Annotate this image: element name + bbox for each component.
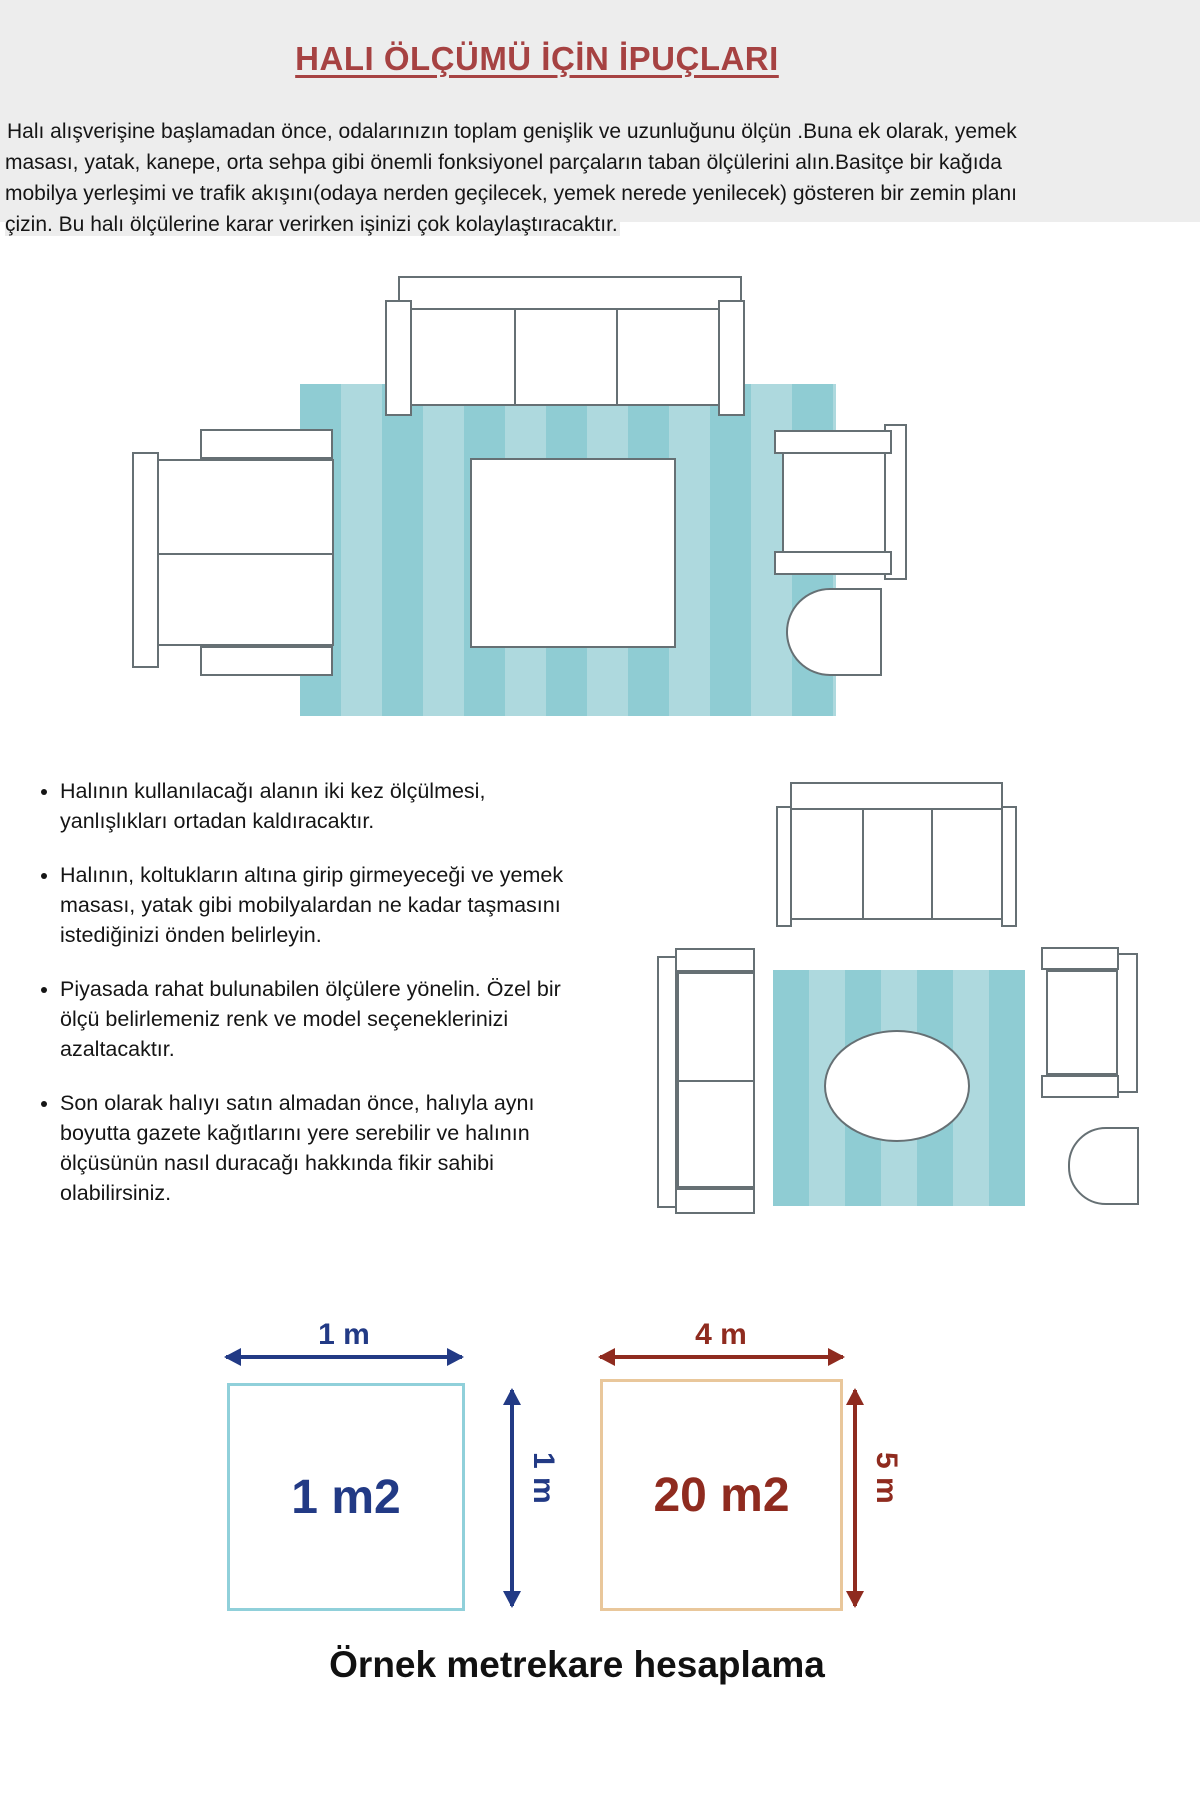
sofa-back [398,276,742,310]
sofa-armrest-right [1001,806,1017,927]
tips-list: Halının kullanılacağı alanın iki kez ölç… [8,776,660,1232]
right-square-width-arrow [600,1355,843,1359]
tip-text: Halının, koltukların altına girip girmey… [60,863,563,947]
rounded-chair [786,588,882,676]
sofa-cushion-divider [514,310,516,404]
right-square-area-label: 20 m2 [653,1468,789,1523]
armchair-seat [1046,970,1118,1075]
sofa-cushion-divider [931,810,933,918]
loveseat-cushion-divider [159,553,332,555]
armchair-armrest-bottom [1041,1075,1119,1098]
right-square-height-arrow [853,1390,857,1606]
rounded-chair [1068,1127,1139,1205]
loveseat-seat [677,972,755,1188]
twenty-square-meter-box: 20 m2 [600,1379,843,1611]
loveseat-armrest-top [675,948,755,972]
armchair-seat [782,452,886,553]
armchair-armrest-top [774,430,892,454]
sofa-back [790,782,1003,810]
one-square-meter-box: 1 m2 [227,1383,465,1611]
page-title: HALI ÖLÇÜMÜ İÇİN İPUÇLARI [0,40,1074,78]
left-square-width-label: 1 m [284,1318,404,1352]
armchair-back [1116,953,1138,1093]
coffee-table [470,458,676,648]
sofa-cushion-divider [862,810,864,918]
tip-item: Halının, koltukların altına girip girmey… [60,860,660,950]
sofa-armrest-right [718,300,745,416]
tip-item: Son olarak halıyı satın almadan önce, ha… [60,1088,660,1208]
loveseat-armrest-bottom [200,646,333,676]
tip-item: Piyasada rahat bulunabilen ölçülere yöne… [60,974,660,1064]
carpet-measuring-tips-page: HALI ÖLÇÜMÜ İÇİN İPUÇLARI Halı alışveriş… [0,0,1200,1800]
sofa-cushion-divider [616,310,618,404]
tip-text: Son olarak halıyı satın almadan önce, ha… [60,1091,534,1205]
loveseat-back [132,452,159,668]
tip-text: Halının kullanılacağı alanın iki kez ölç… [60,779,485,833]
left-square-height-arrow [510,1390,514,1606]
tip-item: Halının kullanılacağı alanın iki kez ölç… [60,776,660,836]
left-square-width-arrow [226,1355,462,1359]
loveseat-cushion-divider [679,1080,753,1082]
oval-table [824,1030,970,1142]
intro-text: Halı alışverişine başlamadan önce, odala… [5,120,1017,236]
sofa-seat [410,308,720,406]
sofa-armrest-left [385,300,412,416]
left-square-area-label: 1 m2 [291,1470,400,1525]
armchair-armrest-bottom [774,551,892,575]
example-caption: Örnek metrekare hesaplama [0,1644,1154,1686]
loveseat-armrest-top [200,429,333,459]
armchair-armrest-top [1041,947,1119,970]
loveseat-seat [157,459,334,646]
sofa-seat [790,808,1003,920]
intro-paragraph: Halı alışverişine başlamadan önce, odala… [5,116,1165,240]
right-square-height-label: 5 m [869,1452,903,1504]
loveseat-armrest-bottom [675,1188,755,1214]
right-square-width-label: 4 m [661,1318,781,1352]
loveseat-back [657,956,677,1208]
left-square-height-label: 1 m [526,1452,560,1504]
tip-text: Piyasada rahat bulunabilen ölçülere yöne… [60,977,561,1061]
